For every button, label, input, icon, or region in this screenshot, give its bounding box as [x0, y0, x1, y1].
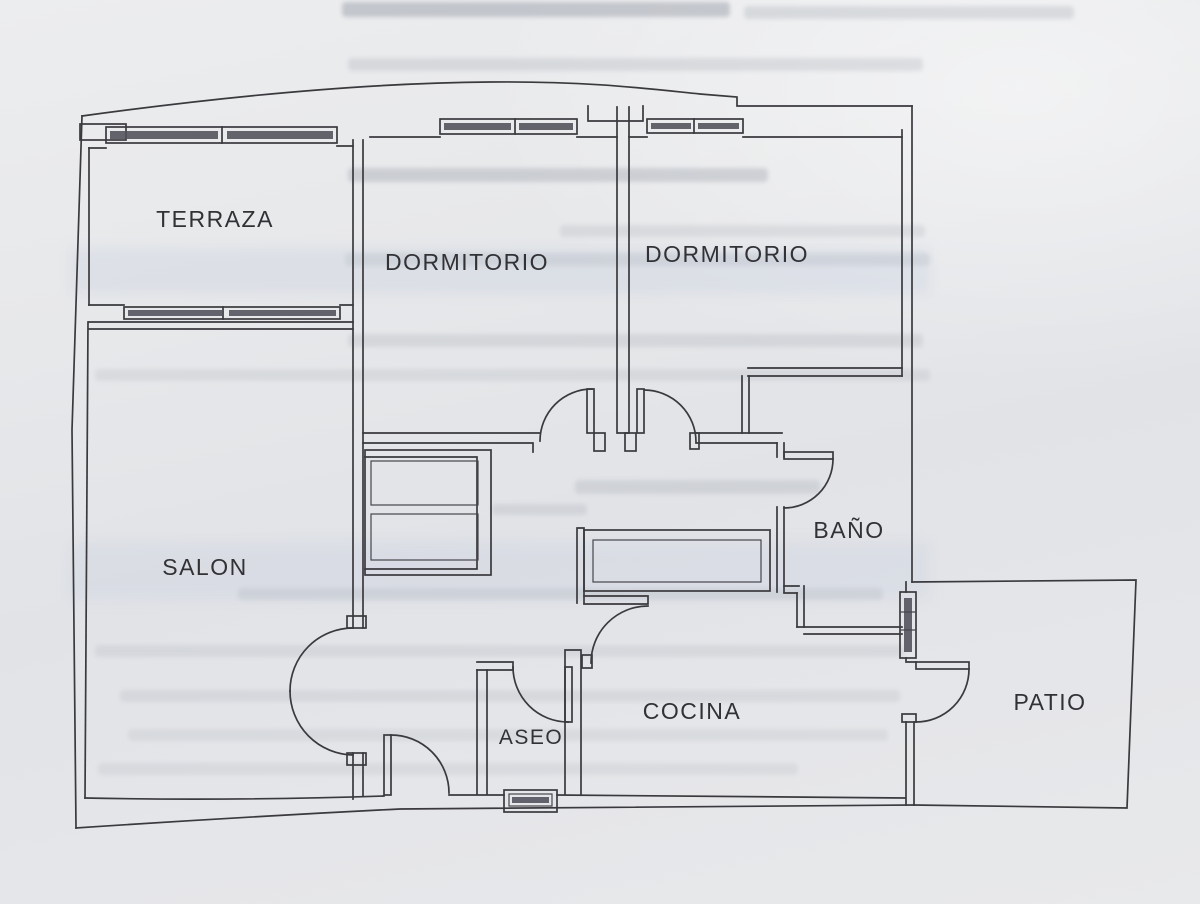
aseo-door-leaf [565, 667, 572, 722]
kitchen-counter [584, 530, 770, 591]
room-label-dormitorio-2: DORMITORIO [645, 241, 809, 267]
dormitorio-2-door-leaf [637, 389, 644, 433]
room-label-bano: BAÑO [813, 517, 884, 543]
dormitorio-2-door-arc [644, 390, 696, 442]
salon-door-arc-bottom [290, 691, 353, 755]
room-label-cocina: COCINA [643, 698, 741, 724]
aseo-door-arc [513, 667, 568, 722]
dormitorio-1-door-arc [540, 389, 592, 441]
dormitorio-1-door-leaf [587, 389, 594, 433]
room-labels: TERRAZA DORMITORIO DORMITORIO SALON BAÑO… [156, 206, 1086, 749]
exterior-walls [72, 82, 1136, 828]
patio-door-leaf [916, 662, 969, 669]
entrance-door-leaf [384, 735, 391, 795]
built-in-closet [365, 450, 491, 575]
bano-door-leaf [784, 452, 833, 459]
cocina-door-arc [591, 606, 648, 663]
bano-door-arc [784, 459, 833, 508]
room-label-aseo: ASEO [499, 726, 563, 749]
floor-plan-drawing: TERRAZA DORMITORIO DORMITORIO SALON BAÑO… [0, 0, 1200, 904]
salon-door-arc-top [290, 628, 353, 691]
room-label-dormitorio-1: DORMITORIO [385, 249, 549, 275]
room-label-patio: PATIO [1013, 689, 1086, 715]
patio-door-arc [916, 669, 969, 722]
room-label-terraza: TERRAZA [156, 206, 274, 232]
scanned-page: TERRAZA DORMITORIO DORMITORIO SALON BAÑO… [0, 0, 1200, 904]
room-label-salon: SALON [162, 554, 247, 580]
entrance-door-arc [391, 735, 449, 793]
